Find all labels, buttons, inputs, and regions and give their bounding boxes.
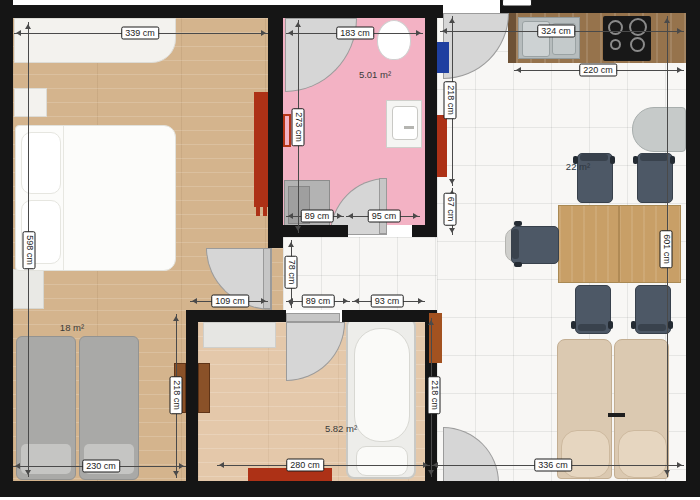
- cooktop-burner: [629, 18, 647, 36]
- dim-label-bedroom-bottom-width: 230 cm: [82, 460, 120, 473]
- wall-bathroom-bottom-top-left: [186, 310, 286, 322]
- dim-label-hall-width: 78 cm: [285, 256, 298, 289]
- bedroom-radiator-foot: [263, 207, 267, 216]
- electrical-panel: [437, 42, 449, 73]
- dim-label-bathroom-top-height: 273 cm: [292, 108, 305, 146]
- dim-label-bedroom-right-height: 218 cm: [170, 376, 183, 414]
- cooktop-burner: [630, 37, 645, 52]
- chair-arm: [670, 156, 675, 164]
- dim-label-living-height: 601 cm: [660, 230, 673, 268]
- sofa-cushion: [618, 430, 667, 478]
- bathroom-bottom-door-leaf: [286, 313, 340, 322]
- chair-arm: [608, 321, 613, 329]
- area-label-bathroom-bottom: 5.82 m²: [325, 423, 357, 434]
- wall-bathroom-top-bottom-left: [268, 225, 348, 237]
- wall-top: [0, 5, 443, 18]
- dim-label-living-bottom-width: 336 cm: [534, 459, 572, 472]
- dim-label-bedroom-door-nook: 109 cm: [211, 295, 249, 308]
- dim-label-bathroom-bottom-height: 218 cm: [428, 376, 441, 414]
- bed-duvet-fold: [63, 126, 64, 270]
- wall-radiator-outline: [283, 114, 291, 147]
- entry-radiator: [437, 115, 447, 177]
- washbasin-bowl: [392, 106, 418, 140]
- dining-table-seam: [618, 205, 620, 283]
- dim-label-bedroom-width: 339 cm: [121, 27, 159, 40]
- wall-bottom: [0, 481, 700, 497]
- dim-label-bathroom-top-width: 183 cm: [336, 27, 374, 40]
- wall-entry: [425, 5, 437, 237]
- chair-back: [638, 324, 666, 331]
- wall-bedroom-bathroom: [268, 5, 283, 248]
- area-label-bathroom-top: 5.01 m²: [359, 69, 391, 80]
- armchair-back: [512, 229, 519, 259]
- water-heater: [632, 107, 686, 152]
- nightstand: [14, 88, 47, 117]
- dim-label-bathroom-top-door: 95 cm: [368, 210, 401, 223]
- dim-label-hall-segment-a: 89 cm: [302, 295, 335, 308]
- floor-plan: 339 cm 183 cm 324 cm 220 cm 598 cm 273 c…: [0, 0, 700, 500]
- bathtub-seat: [356, 446, 408, 476]
- chair-arm: [633, 156, 638, 164]
- dim-label-living-width: 324 cm: [537, 25, 575, 38]
- dim-label-bathroom-bottom-width: 280 cm: [286, 459, 324, 472]
- bedroom-radiator: [254, 92, 268, 207]
- chair-back: [640, 154, 668, 161]
- dim-label-partial-top: [502, 0, 532, 7]
- area-label-bedroom: 18 m²: [60, 322, 84, 333]
- wall-right: [686, 0, 700, 497]
- cooktop-burner: [608, 20, 623, 35]
- wall-bathroom-bottom-top-right: [342, 310, 437, 322]
- bed-pillow: [21, 132, 61, 194]
- chair-back: [578, 324, 606, 331]
- dim-label-entry-wall: 218 cm: [444, 81, 457, 119]
- toilet: [377, 20, 411, 60]
- armchair-arm: [514, 221, 522, 226]
- wall-left: [0, 0, 13, 497]
- remote-on-sofa: [608, 413, 625, 417]
- armchair-arm: [514, 262, 522, 267]
- washbasin-tap: [404, 126, 414, 129]
- dim-label-hall-segment-b: 93 cm: [371, 295, 404, 308]
- area-label-living-kitchen: 22 m²: [566, 161, 590, 172]
- cooktop-burner: [610, 39, 621, 50]
- wardrobe: [14, 18, 176, 63]
- bathroom-top-door-leaf: [379, 178, 387, 234]
- bathroom-shelf: [203, 322, 276, 348]
- dim-label-kitchen-counter: 220 cm: [579, 64, 617, 77]
- dim-label-bedroom-height: 598 cm: [23, 231, 36, 269]
- dim-label-entry-wall-lower: 67 cm: [444, 193, 457, 226]
- cabinet-bathroom-side: [198, 363, 210, 413]
- dim-label-bathroom-top-wall-segment: 89 cm: [301, 210, 334, 223]
- chair-arm: [631, 321, 636, 329]
- chair-arm: [571, 321, 576, 329]
- chair-arm: [610, 156, 615, 164]
- chair-arm: [668, 321, 673, 329]
- wall-bathroom-bottom-left: [186, 322, 198, 481]
- bedroom-radiator-foot: [256, 207, 260, 216]
- bathtub-basin: [354, 328, 410, 442]
